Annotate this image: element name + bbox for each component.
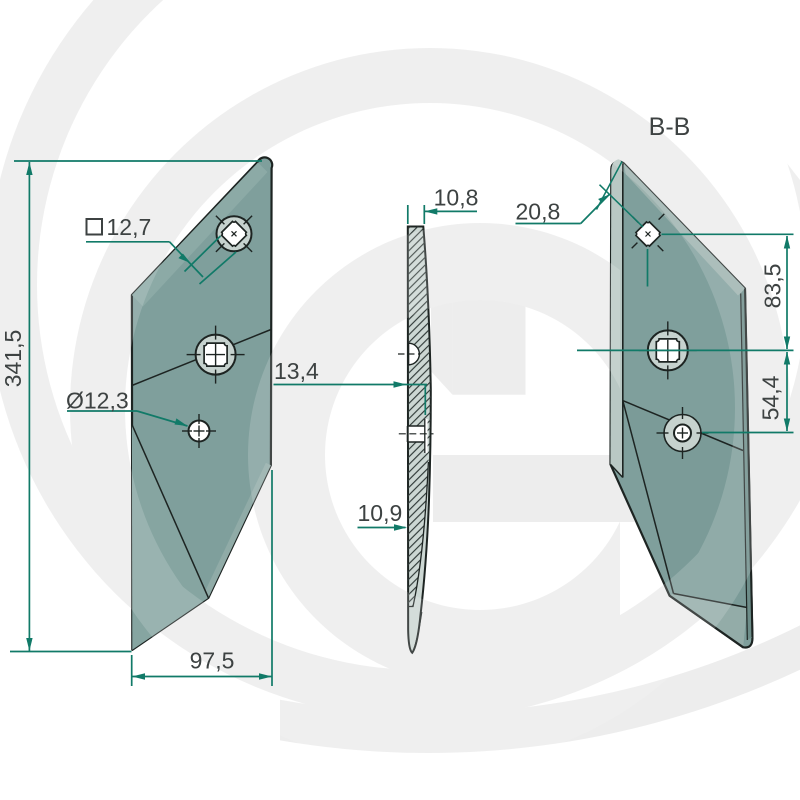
svg-text:97,5: 97,5	[190, 648, 235, 674]
svg-text:83,5: 83,5	[760, 264, 786, 309]
svg-text:20,8: 20,8	[516, 199, 561, 225]
svg-text:12,7: 12,7	[107, 214, 152, 240]
svg-text:13,4: 13,4	[274, 358, 319, 384]
svg-text:10,8: 10,8	[434, 185, 479, 211]
svg-text:Ø12,3: Ø12,3	[66, 388, 129, 414]
svg-text:54,4: 54,4	[758, 375, 784, 420]
svg-text:341,5: 341,5	[0, 330, 26, 388]
svg-text:B-B: B-B	[649, 113, 691, 141]
svg-text:10,9: 10,9	[358, 500, 403, 526]
